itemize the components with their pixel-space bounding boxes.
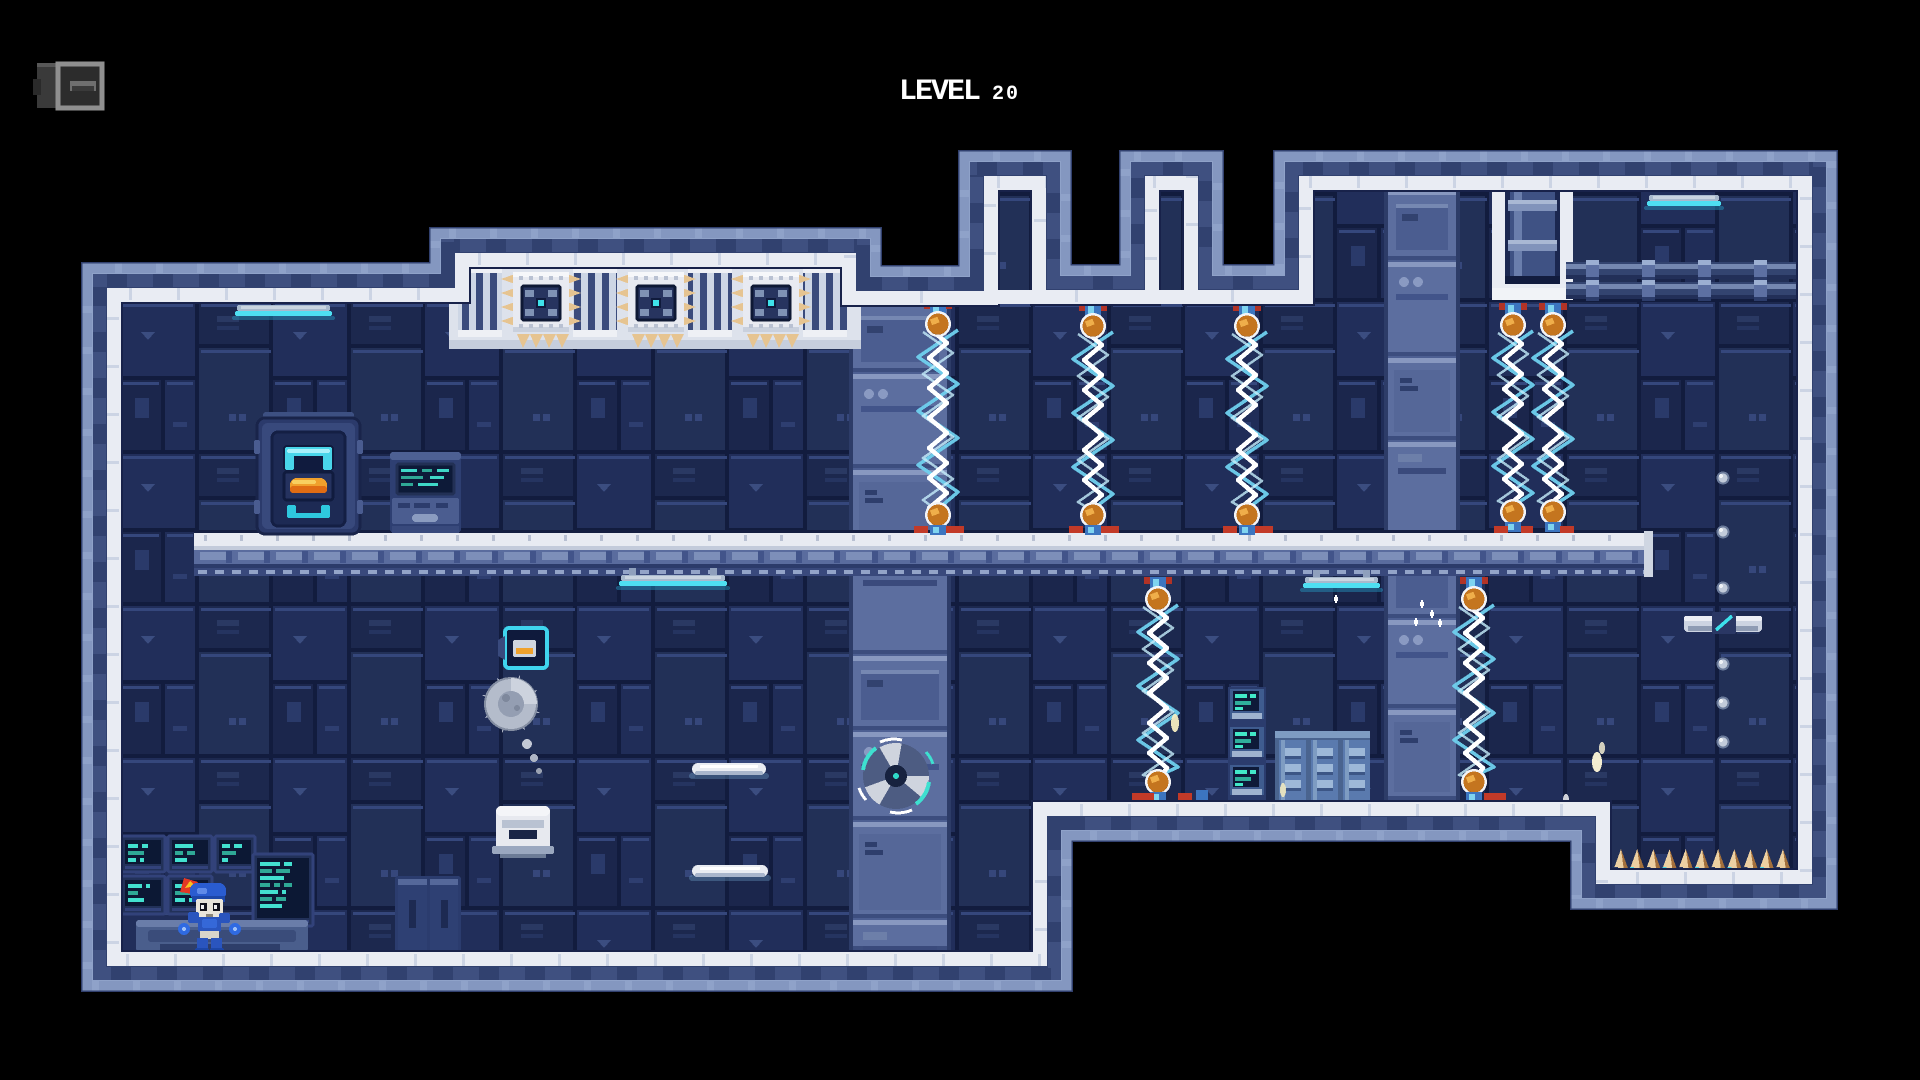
svg-text:LEVEL: LEVEL [899,75,980,109]
svg-text:20: 20 [992,83,1020,106]
